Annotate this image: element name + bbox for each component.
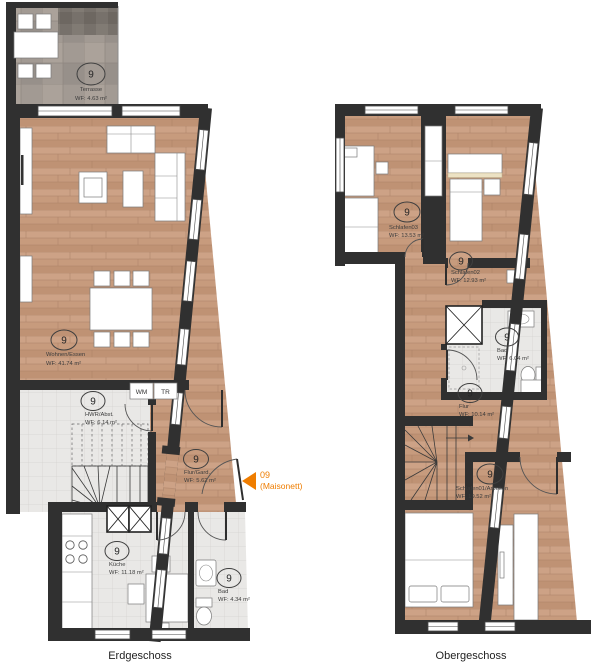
svg-text:9: 9 [193, 455, 199, 466]
built-in-closet [425, 126, 442, 196]
svg-text:9: 9 [404, 208, 410, 219]
svg-text:WF: 5.62 m²: WF: 5.62 m² [184, 478, 216, 484]
unit-marker: 09 (Maisonett) [242, 470, 303, 491]
tv [21, 155, 24, 185]
svg-text:WF: 10.14 m²: WF: 10.14 m² [459, 412, 494, 418]
svg-text:WF: 4.34 m²: WF: 4.34 m² [218, 597, 250, 603]
entry-arrow-icon [242, 472, 256, 490]
svg-text:Schlafen03: Schlafen03 [389, 225, 418, 231]
toilet [196, 598, 212, 607]
shaft-eg [107, 506, 151, 532]
floorplan-canvas: WM TR 9 Terrasse WF: 4.63 m² 9 [0, 0, 601, 670]
svg-text:9: 9 [114, 547, 120, 558]
svg-text:Flur/Gard.: Flur/Gard. [184, 470, 210, 476]
washbasin [196, 560, 216, 586]
svg-text:9: 9 [61, 336, 67, 347]
svg-text:9: 9 [90, 397, 96, 408]
svg-text:9: 9 [467, 389, 473, 400]
floor-plan-obergeschoss: 9 Schlafen03 WF: 13.53 m² 9 Schlafen02 W… [335, 104, 591, 634]
terrace-top-wall [6, 2, 118, 8]
svg-text:9: 9 [88, 70, 94, 81]
svg-text:Flur: Flur [459, 404, 469, 410]
schlafen01-furniture [405, 513, 538, 620]
caption-erdgeschoss: Erdgeschoss [108, 650, 172, 662]
svg-text:Terrasse: Terrasse [80, 87, 102, 93]
svg-text:WF: 11.18 m²: WF: 11.18 m² [109, 570, 144, 576]
svg-text:Wohnen/Essen: Wohnen/Essen [46, 352, 85, 358]
svg-text:Bad: Bad [497, 348, 507, 354]
unit-type: (Maisonett) [260, 481, 303, 491]
dryer-label: TR [161, 389, 170, 396]
svg-text:WF: 41.74 m²: WF: 41.74 m² [46, 361, 81, 367]
svg-text:WF: 4.63 m²: WF: 4.63 m² [75, 96, 107, 102]
floorplan-drawing: WM TR 9 Terrasse WF: 4.63 m² 9 [0, 0, 601, 670]
svg-text:9: 9 [458, 257, 464, 268]
desk [514, 514, 538, 620]
floor-plan-erdgeschoss: WM TR 9 Terrasse WF: 4.63 m² 9 [6, 2, 303, 642]
washer-label: WM [136, 389, 148, 396]
svg-text:WF: 19.52 m²: WF: 19.52 m² [456, 494, 491, 500]
svg-text:Schlafen01/Arbeiten: Schlafen01/Arbeiten [456, 486, 508, 492]
svg-text:WF: 12.93 m²: WF: 12.93 m² [451, 278, 486, 284]
svg-text:WF: 13.53 m²: WF: 13.53 m² [389, 233, 424, 239]
svg-text:9: 9 [487, 470, 493, 481]
svg-text:Küche: Küche [109, 562, 125, 568]
unit-number: 09 [260, 470, 270, 480]
terrace-planter [58, 8, 118, 35]
dining-table [90, 288, 152, 330]
svg-text:Schlafen02: Schlafen02 [451, 270, 480, 276]
svg-text:HWR/Abst.: HWR/Abst. [85, 412, 114, 418]
svg-text:9: 9 [504, 333, 510, 344]
svg-text:WF: 6.14 m²: WF: 6.14 m² [85, 420, 117, 426]
svg-text:WF: 6.04 m²: WF: 6.04 m² [497, 356, 529, 362]
svg-text:Bad: Bad [218, 589, 228, 595]
door-opening [405, 252, 423, 264]
shaft-og [446, 306, 482, 344]
svg-text:9: 9 [226, 574, 232, 585]
caption-obergeschoss: Obergeschoss [436, 650, 507, 662]
